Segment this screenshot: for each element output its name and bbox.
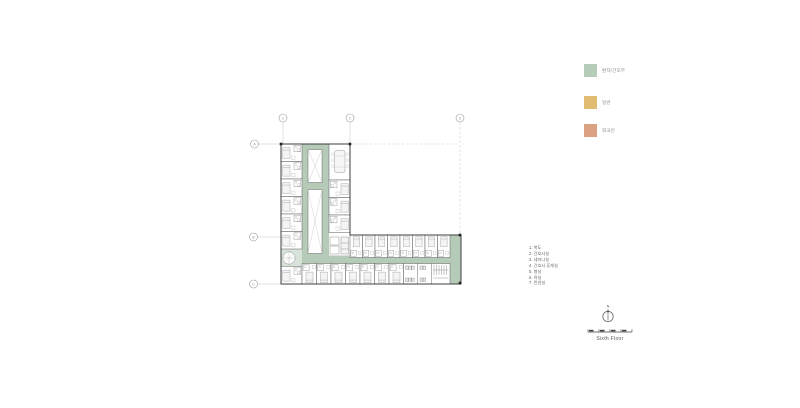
floor-plan: 1 2 3 A B C — [235, 100, 480, 300]
north-arrow: N — [603, 305, 613, 322]
legend-swatch-green — [584, 64, 597, 77]
core-shafts — [308, 150, 322, 254]
legend-swatch-orange — [584, 124, 597, 137]
note-item: 7. 린넨실 — [529, 280, 558, 286]
grid-bubble-top-1: 1 — [279, 114, 287, 122]
scale-bar — [588, 329, 632, 332]
page: 1 2 3 A B C — [0, 0, 800, 408]
rooms-right-column — [329, 144, 350, 233]
legend-label: 환자/간호부 — [602, 68, 625, 74]
legend-item-common: 환자/간호부 — [584, 64, 625, 77]
legend-label: 일반 — [602, 100, 611, 106]
floor-title: Sixth Floor — [580, 336, 640, 342]
grid-bubble-left-2: B — [250, 233, 258, 241]
grid-bubble-top-3: 3 — [456, 114, 464, 122]
legend-item-foreigner: 외국인 — [584, 124, 615, 137]
legend-label: 외국인 — [602, 128, 615, 134]
grid-bubble-left-3: C — [250, 280, 258, 288]
grid-bubble-top-2: 2 — [346, 114, 354, 122]
svg-text:3: 3 — [459, 116, 461, 120]
svg-text:N: N — [607, 305, 610, 309]
note-item: 4. 간호사 휴게실 — [529, 263, 558, 269]
round-table — [283, 252, 295, 264]
legend-item-general: 일반 — [584, 96, 611, 109]
rooms-top-row — [350, 235, 450, 258]
grid-bubble-left-1: A — [251, 140, 259, 148]
legend-swatch-yellow — [584, 96, 597, 109]
svg-text:2: 2 — [349, 116, 351, 120]
compass-and-scale: N — [575, 298, 645, 338]
svg-text:1: 1 — [282, 116, 284, 120]
room-key-list: 1. 복도 2. 간호사실 3. 세미나실 4. 간호사 휴게실 5. 병실 6… — [529, 245, 558, 286]
service-block — [404, 264, 451, 285]
meeting-room — [329, 144, 350, 180]
rooms-bottom-row — [302, 264, 404, 285]
nurse-station — [330, 237, 349, 254]
